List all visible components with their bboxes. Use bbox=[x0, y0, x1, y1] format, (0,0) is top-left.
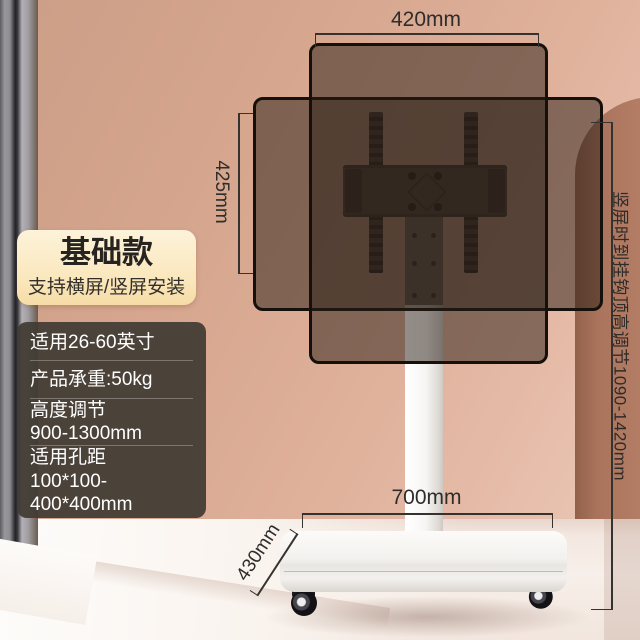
spec-row-load: 产品承重:50kg bbox=[30, 361, 193, 398]
dimension-label-base-width: 700mm bbox=[302, 486, 551, 510]
model-badge-subtitle: 支持横屏/竖屏安装 bbox=[28, 272, 185, 299]
spec-vesa-title: 适用孔距 bbox=[30, 446, 193, 469]
product-dimension-diagram: 420mm 425mm 700mm 430mm 竖屏时到挂钩顶高调节1090-1… bbox=[0, 0, 640, 640]
dimension-label-screen-width: 420mm bbox=[315, 8, 537, 32]
spec-height-title: 高度调节 bbox=[30, 399, 193, 422]
spec-size-text: 适用26-60英寸 bbox=[30, 331, 193, 354]
stand-base bbox=[280, 531, 567, 592]
spec-row-size: 适用26-60英寸 bbox=[30, 324, 193, 361]
spec-row-vesa: 适用孔距 100*100-400*400mm bbox=[30, 446, 193, 516]
model-badge: 基础款 支持横屏/竖屏安装 bbox=[17, 230, 196, 305]
caster-wheel bbox=[291, 590, 317, 616]
spec-panel: 适用26-60英寸 产品承重:50kg 高度调节 900-1300mm 适用孔距… bbox=[17, 322, 206, 518]
dimension-bracket-screen-width bbox=[315, 33, 539, 47]
dimension-label-screen-height: 425mm bbox=[210, 160, 232, 223]
spec-load-text: 产品承重:50kg bbox=[30, 368, 193, 391]
screen-portrait-silhouette bbox=[309, 43, 548, 364]
spec-row-height: 高度调节 900-1300mm bbox=[30, 399, 193, 447]
spec-height-value: 900-1300mm bbox=[30, 422, 193, 445]
model-badge-title: 基础款 bbox=[60, 236, 153, 270]
dimension-label-hook-height: 竖屏时到挂钩顶高调节1090-1420mm bbox=[610, 191, 635, 481]
dimension-bracket-base-width bbox=[302, 513, 553, 528]
spec-vesa-value: 100*100-400*400mm bbox=[30, 470, 193, 516]
dimension-bracket-screen-height bbox=[238, 113, 253, 274]
